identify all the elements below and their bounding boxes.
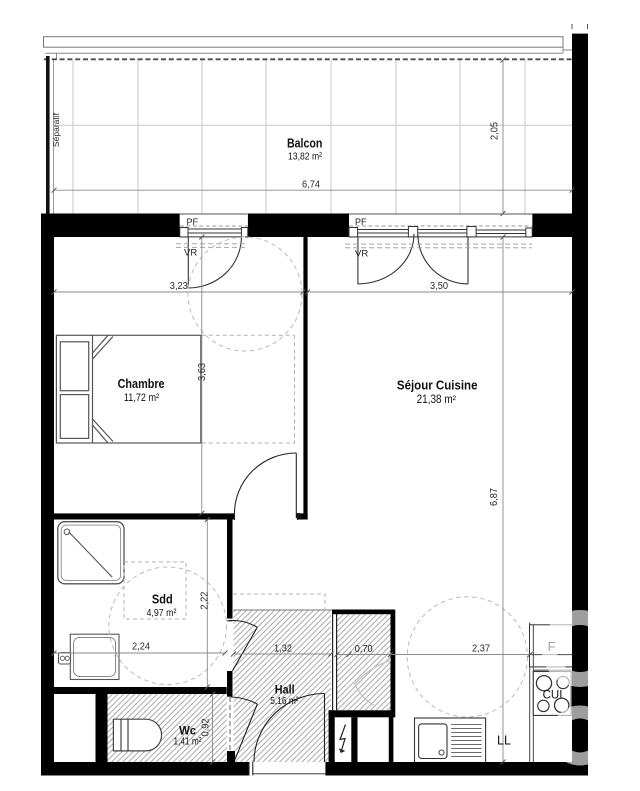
svg-text:21,38 m²: 21,38 m² (417, 394, 456, 406)
svg-text:0,92: 0,92 (200, 718, 211, 736)
svg-text:3,50: 3,50 (430, 281, 448, 292)
svg-text:CUI: CUI (543, 689, 563, 701)
svg-text:Chambre: Chambre (118, 376, 165, 391)
svg-text:4,97 m²: 4,97 m² (147, 607, 177, 619)
svg-text:0,70: 0,70 (355, 644, 373, 655)
svg-text:LL: LL (497, 734, 511, 748)
svg-text:Balcon: Balcon (287, 136, 323, 151)
svg-text:2,05: 2,05 (490, 122, 501, 140)
svg-text:2,22: 2,22 (200, 591, 211, 609)
svg-text:PF: PF (187, 217, 199, 228)
svg-text:6,87: 6,87 (489, 488, 500, 506)
svg-text:2,24: 2,24 (132, 642, 150, 653)
svg-text:VR: VR (355, 249, 368, 260)
svg-text:1,41 m²: 1,41 m² (174, 735, 202, 747)
svg-text:11,72 m²: 11,72 m² (124, 392, 159, 404)
svg-text:Séparatif: Séparatif (51, 112, 61, 147)
svg-text:3,63: 3,63 (197, 363, 208, 381)
svg-text:Séjour Cuisine: Séjour Cuisine (397, 378, 478, 393)
svg-text:VR: VR (184, 248, 197, 259)
svg-text:PF: PF (355, 217, 367, 228)
svg-text:3,23: 3,23 (170, 281, 188, 292)
svg-text:5,16 m²: 5,16 m² (270, 695, 299, 707)
svg-text:13,82 m²: 13,82 m² (288, 150, 322, 162)
svg-text:6,74: 6,74 (302, 180, 320, 191)
svg-text:2,37: 2,37 (472, 644, 490, 655)
svg-text:Sdd: Sdd (152, 592, 173, 607)
svg-text:1,32: 1,32 (274, 644, 292, 655)
